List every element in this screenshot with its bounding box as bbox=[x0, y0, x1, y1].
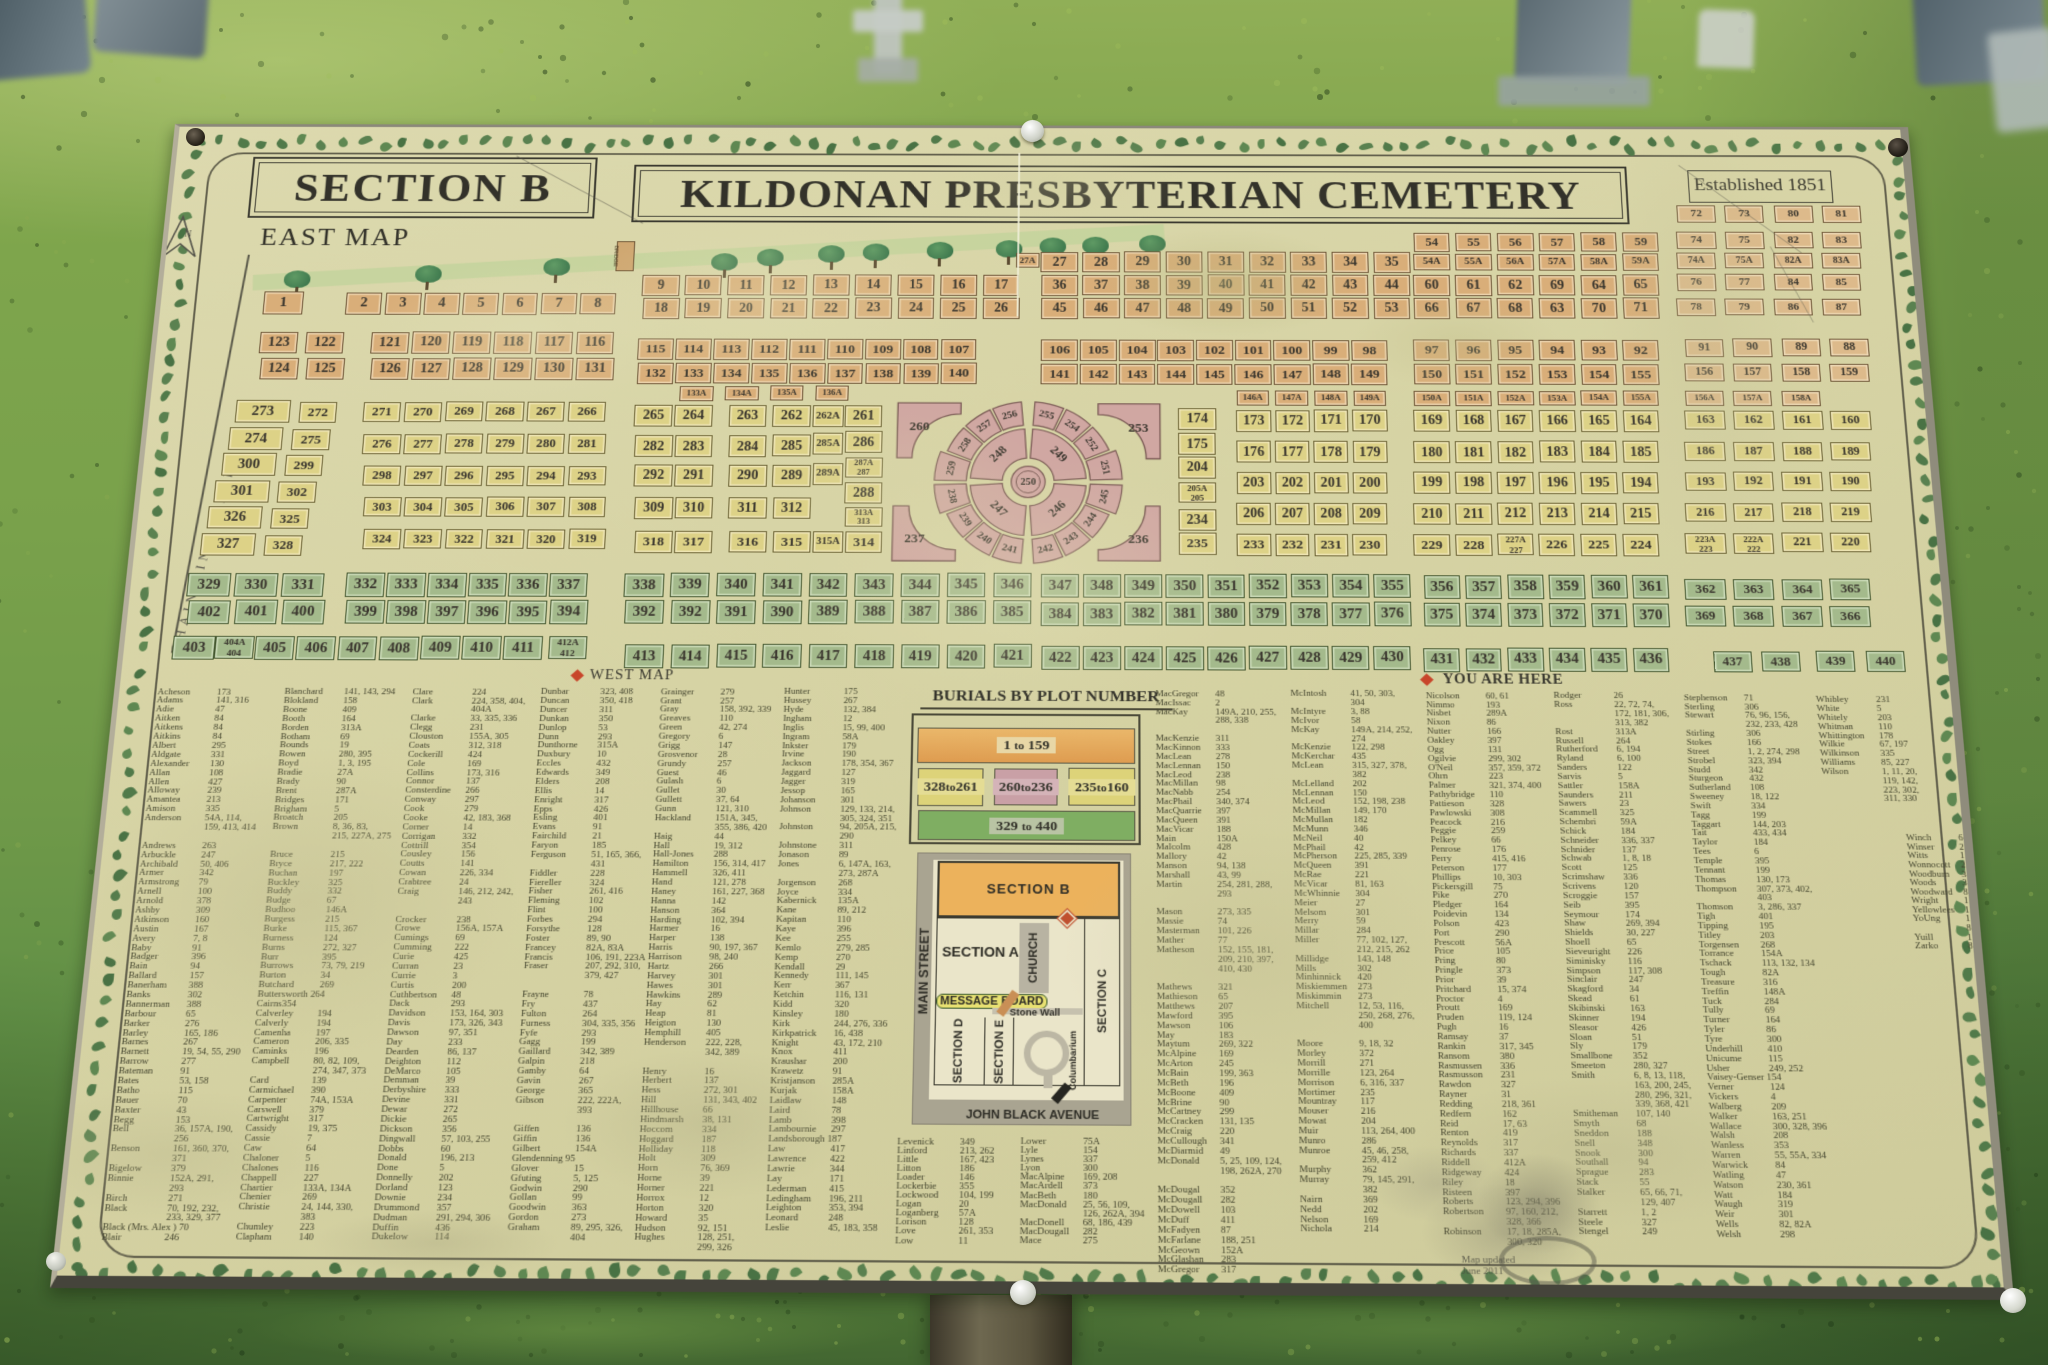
svg-text:253: 253 bbox=[1128, 420, 1148, 434]
